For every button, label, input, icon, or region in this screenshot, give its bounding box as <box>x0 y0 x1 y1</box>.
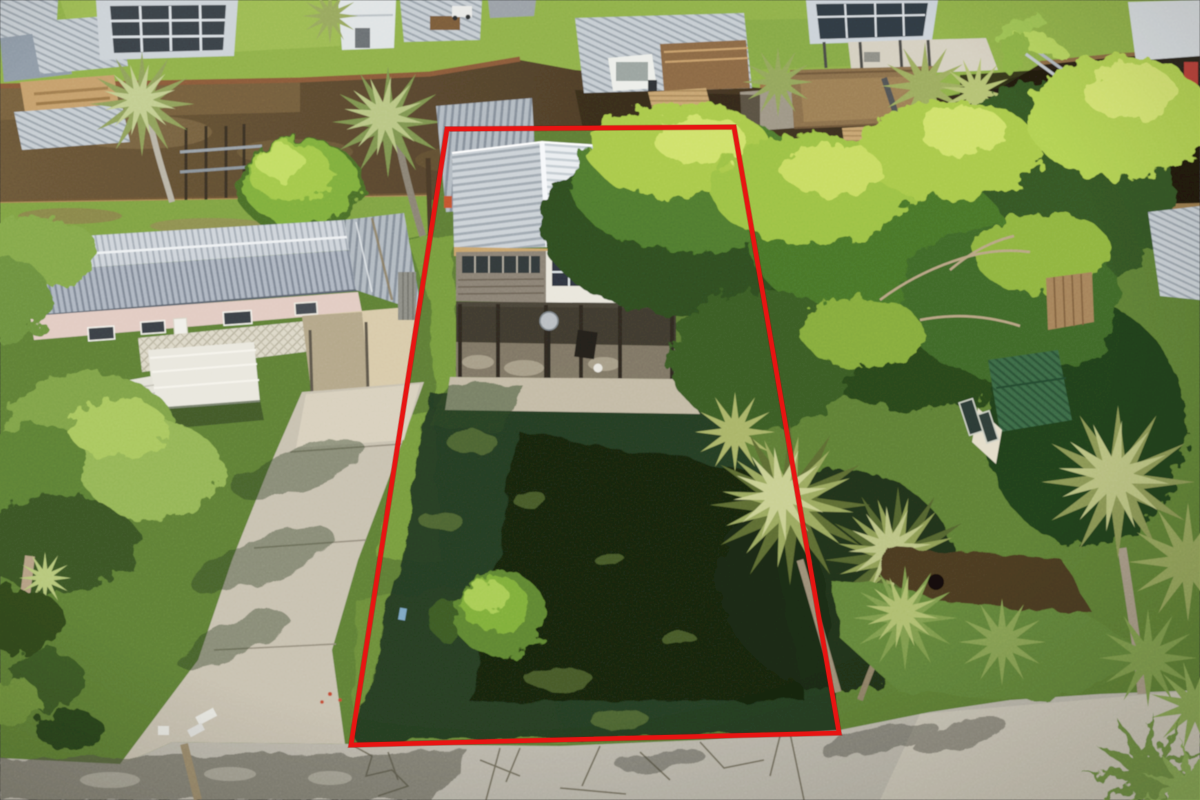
film-grain <box>0 0 1200 800</box>
aerial-photo <box>0 0 1200 800</box>
aerial-photo-canvas <box>0 0 1200 800</box>
